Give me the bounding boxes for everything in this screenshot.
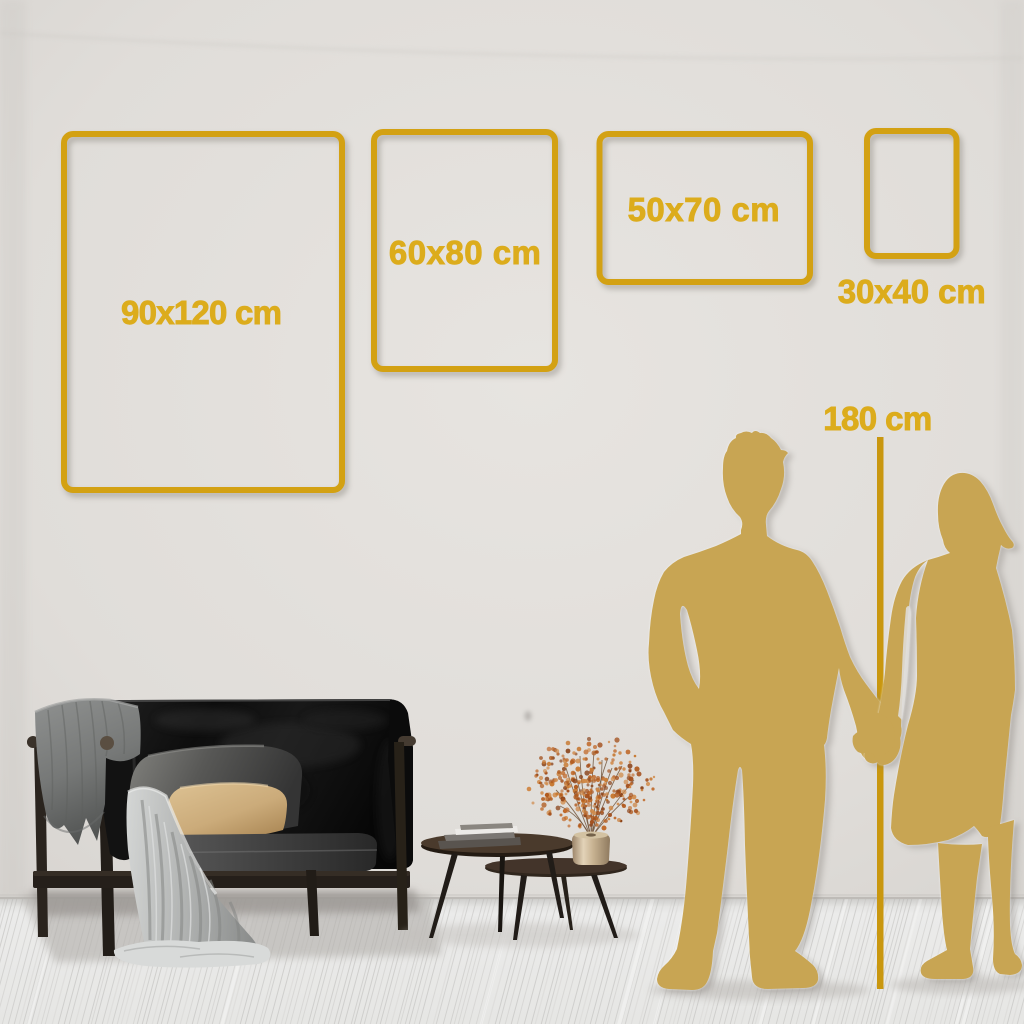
svg-text:60x80 cm: 60x80 cm	[389, 234, 541, 271]
svg-text:180 cm: 180 cm	[823, 400, 932, 437]
svg-text:30x40 cm: 30x40 cm	[838, 273, 986, 310]
svg-text:90x120 cm: 90x120 cm	[121, 294, 282, 331]
svg-text:50x70 cm: 50x70 cm	[628, 191, 780, 228]
